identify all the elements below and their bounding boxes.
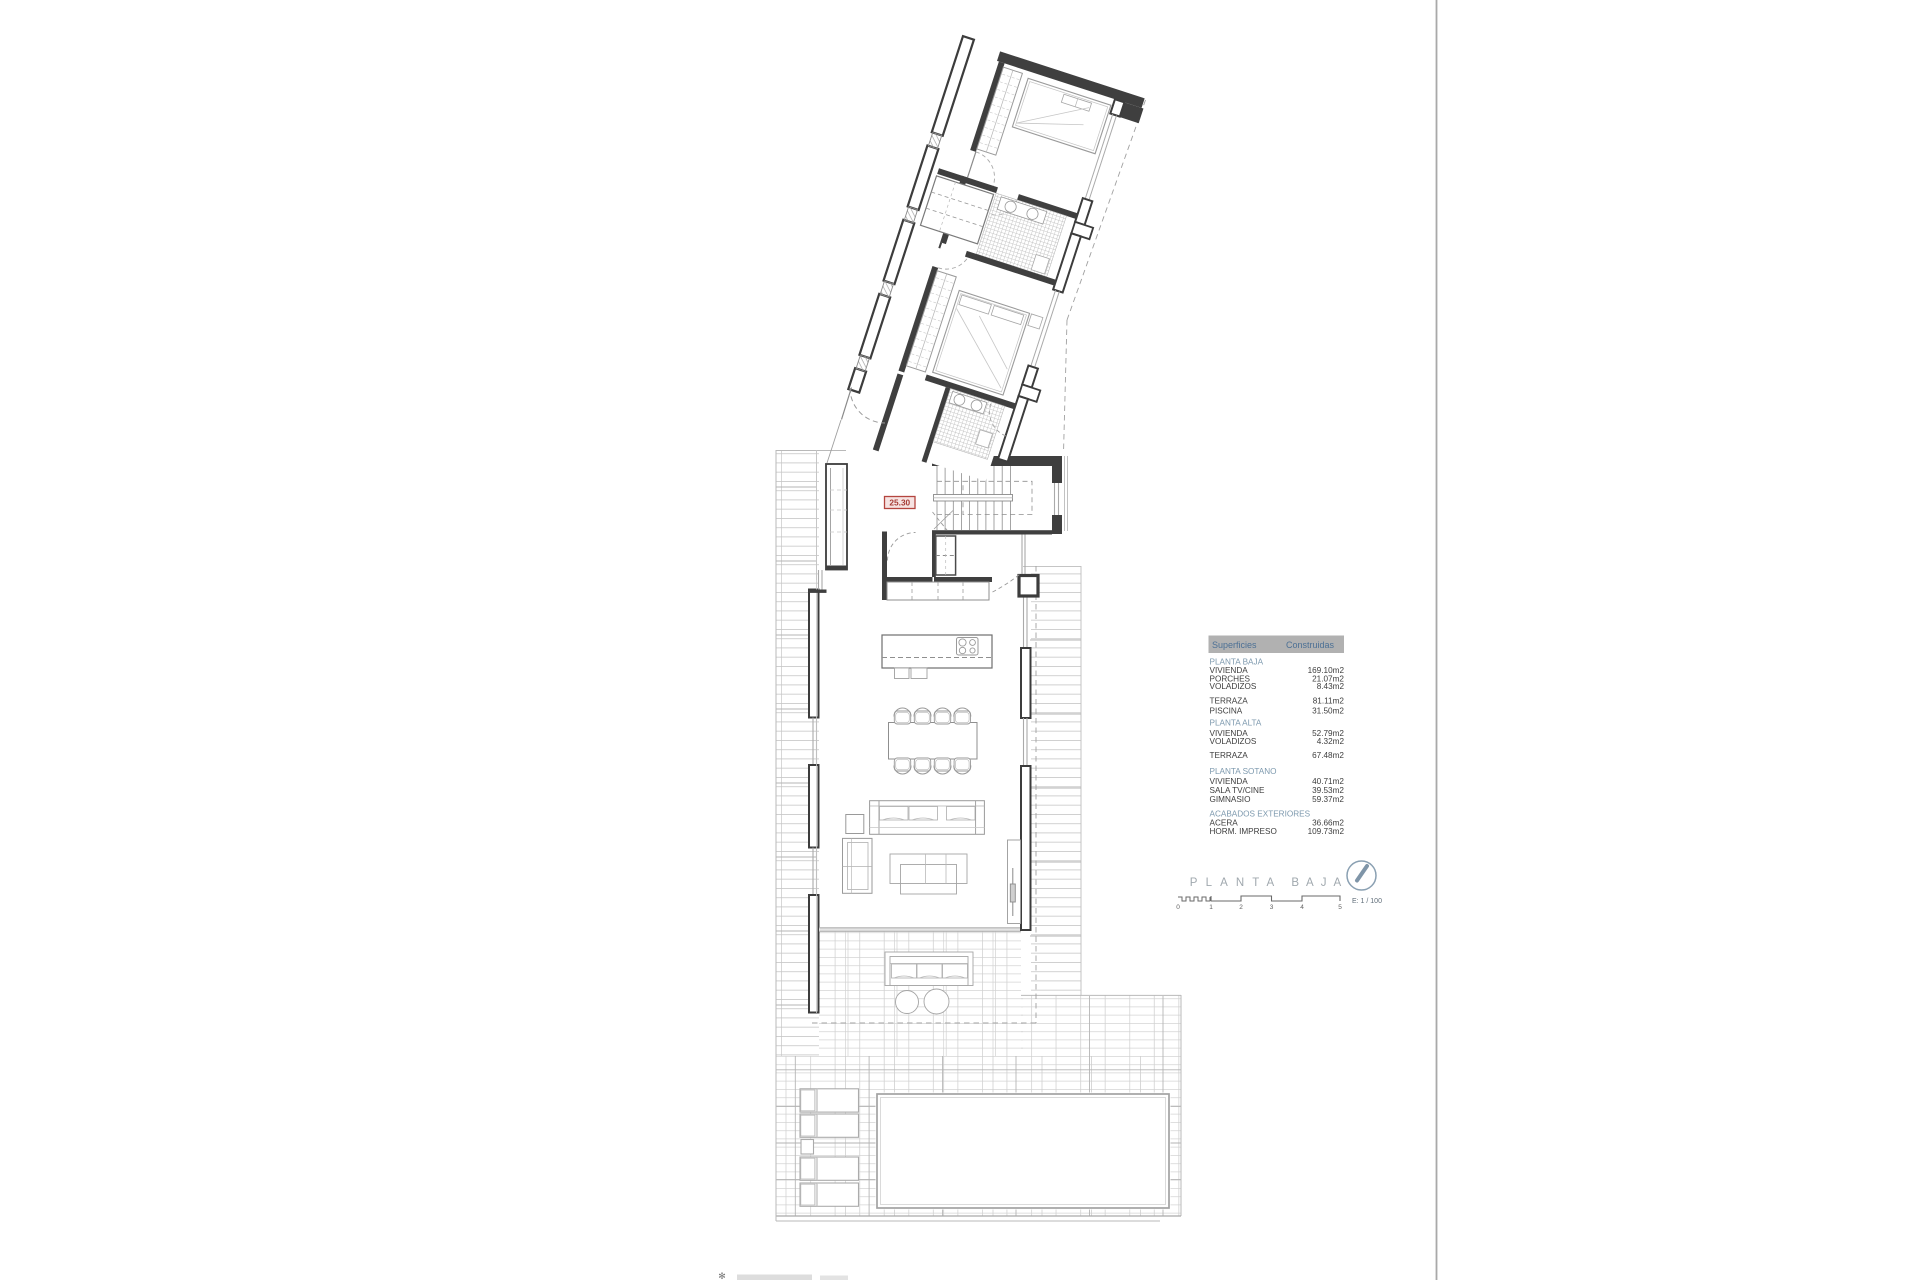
svg-text:GIMNASIO: GIMNASIO: [1210, 795, 1251, 804]
svg-text:PISCINA: PISCINA: [1210, 707, 1243, 716]
svg-text:40.71m2: 40.71m2: [1312, 777, 1344, 786]
svg-text:Superficies: Superficies: [1212, 640, 1257, 650]
svg-text:3: 3: [1270, 904, 1274, 911]
svg-text:BAJA: BAJA: [1291, 877, 1348, 889]
svg-text:VOLADIZOS: VOLADIZOS: [1210, 737, 1257, 746]
svg-text:PLANTA ALTA: PLANTA ALTA: [1210, 719, 1262, 728]
svg-text:TERRAZA: TERRAZA: [1210, 697, 1249, 706]
svg-text:PLANTA SOTANO: PLANTA SOTANO: [1210, 767, 1277, 776]
svg-text:25.30: 25.30: [889, 497, 910, 507]
svg-text:59.37m2: 59.37m2: [1312, 795, 1344, 804]
svg-text:67.48m2: 67.48m2: [1312, 751, 1344, 760]
svg-text:VIVIENDA: VIVIENDA: [1210, 777, 1249, 786]
svg-text:2: 2: [1239, 904, 1243, 911]
svg-text:VOLADIZOS: VOLADIZOS: [1210, 682, 1257, 691]
svg-text:81.11m2: 81.11m2: [1313, 697, 1345, 706]
svg-text:TERRAZA: TERRAZA: [1210, 751, 1249, 760]
svg-text:SALA TV/CINE: SALA TV/CINE: [1210, 786, 1265, 795]
svg-text:HORM. IMPRESO: HORM. IMPRESO: [1210, 827, 1277, 836]
svg-text:8.43m2: 8.43m2: [1317, 682, 1345, 691]
svg-text:E: 1 / 100: E: 1 / 100: [1352, 898, 1382, 905]
svg-text:1: 1: [1209, 904, 1213, 911]
svg-text:0: 0: [1176, 904, 1180, 911]
svg-text:4: 4: [1300, 904, 1304, 911]
svg-text:ACABADOS EXTERIORES: ACABADOS EXTERIORES: [1210, 810, 1311, 819]
svg-text:39.53m2: 39.53m2: [1312, 786, 1344, 795]
svg-text:4.32m2: 4.32m2: [1317, 737, 1345, 746]
svg-text:✻: ✻: [718, 1271, 726, 1280]
svg-text:Construidas: Construidas: [1286, 640, 1335, 650]
svg-text:5: 5: [1338, 904, 1342, 911]
svg-text:31.50m2: 31.50m2: [1312, 707, 1344, 716]
svg-text:PLANTA: PLANTA: [1190, 877, 1282, 889]
svg-text:109.73m2: 109.73m2: [1308, 827, 1345, 836]
